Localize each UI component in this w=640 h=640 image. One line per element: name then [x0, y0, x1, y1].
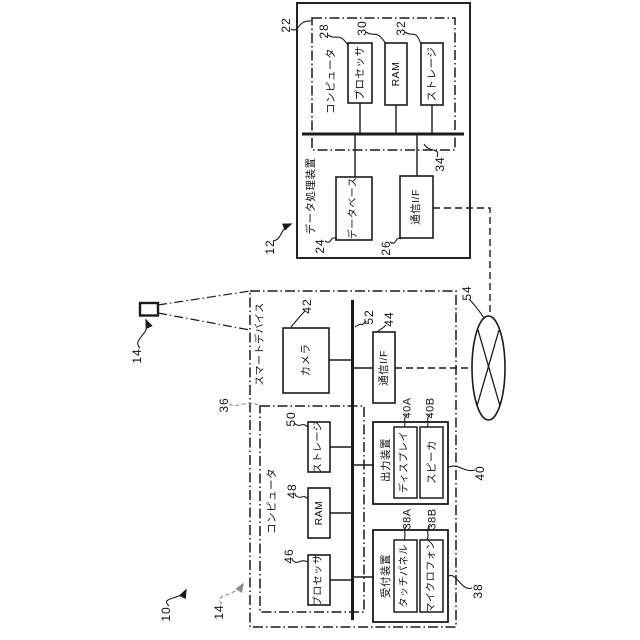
ref-10: 10	[160, 606, 172, 621]
leader-arrow-10	[166, 590, 186, 606]
ref-48: 48	[286, 483, 298, 498]
ref-44: 44	[383, 311, 395, 326]
display40A-label: ディスプレイ	[400, 431, 410, 493]
ref-26: 26	[380, 240, 392, 255]
leader-54	[469, 299, 484, 318]
leader-22	[291, 21, 311, 30]
leader-38	[449, 575, 472, 588]
ref-40B: 40B	[426, 397, 437, 418]
leader-arrow-14-icon	[138, 320, 147, 348]
storage50-label: ストレージ	[314, 421, 324, 473]
dpd-title: データ処理装置	[306, 158, 317, 235]
touch38A-label: タッチパネル	[400, 545, 410, 608]
database24-label: データベース	[349, 177, 359, 240]
ref-40: 40	[474, 465, 486, 480]
ref-40A: 40A	[403, 397, 414, 418]
network54-symbol	[472, 316, 505, 420]
camera42-label: カメラ	[301, 344, 312, 377]
projection-line-top	[158, 291, 250, 305]
mic38B-label: マイクロフォン	[427, 539, 437, 612]
projection-line-bottom	[158, 313, 250, 330]
ref-28: 28	[318, 23, 330, 38]
processor46-label: プロセッサ	[314, 554, 324, 607]
input38-label: 受付装置	[381, 554, 392, 598]
ref-32: 32	[395, 20, 407, 35]
ref-46: 46	[283, 548, 295, 563]
computer36-label: コンピュータ	[267, 468, 278, 534]
comm44-label: 通信I/F	[379, 350, 390, 386]
leader-arrow-14-box	[220, 584, 243, 604]
ref-38B: 38B	[428, 508, 439, 529]
projection-lines	[158, 291, 250, 330]
ref-24: 24	[314, 238, 326, 253]
diagram-canvas	[0, 0, 640, 640]
leader-36	[229, 403, 258, 405]
computer22-label: コンピュータ	[326, 48, 337, 114]
processor28-label: プロセッサ	[355, 46, 366, 101]
ref-38A: 38A	[403, 508, 414, 529]
ref-54: 54	[461, 285, 473, 300]
smart-title: スマートデバイス	[256, 302, 266, 385]
ref-38: 38	[472, 583, 484, 598]
ref-30: 30	[356, 20, 368, 35]
speaker40B-label: スピーカ	[427, 440, 438, 484]
output40-label: 出力装置	[381, 438, 392, 482]
ram48-label: RAM	[314, 501, 325, 526]
ref-12: 12	[264, 239, 276, 254]
leader-28	[328, 35, 348, 45]
ref-14-icon: 14	[131, 348, 143, 363]
comm26-label: 通信I/F	[411, 189, 422, 225]
ref-14-box: 14	[213, 604, 225, 619]
network-cross-line-1	[478, 330, 500, 406]
leader-40	[449, 466, 475, 471]
gray-leader-lines	[220, 403, 258, 604]
ref-36: 36	[218, 397, 230, 412]
ref-50: 50	[285, 411, 297, 426]
ram30-label: RAM	[391, 62, 402, 87]
ref-22: 22	[280, 17, 292, 32]
patent-block-diagram: データ処理装置 12 コンピュータ 22 プロセッサ 28 RAM 30 ストレ…	[0, 0, 640, 640]
storage32-label: ストレージ	[427, 47, 438, 102]
ref-42: 42	[301, 298, 313, 313]
dpd-box	[297, 3, 470, 258]
smart-device-icon	[140, 303, 158, 316]
ref-52: 52	[363, 309, 375, 324]
network-cross-line-2	[477, 330, 499, 406]
ref-34: 34	[434, 156, 446, 171]
